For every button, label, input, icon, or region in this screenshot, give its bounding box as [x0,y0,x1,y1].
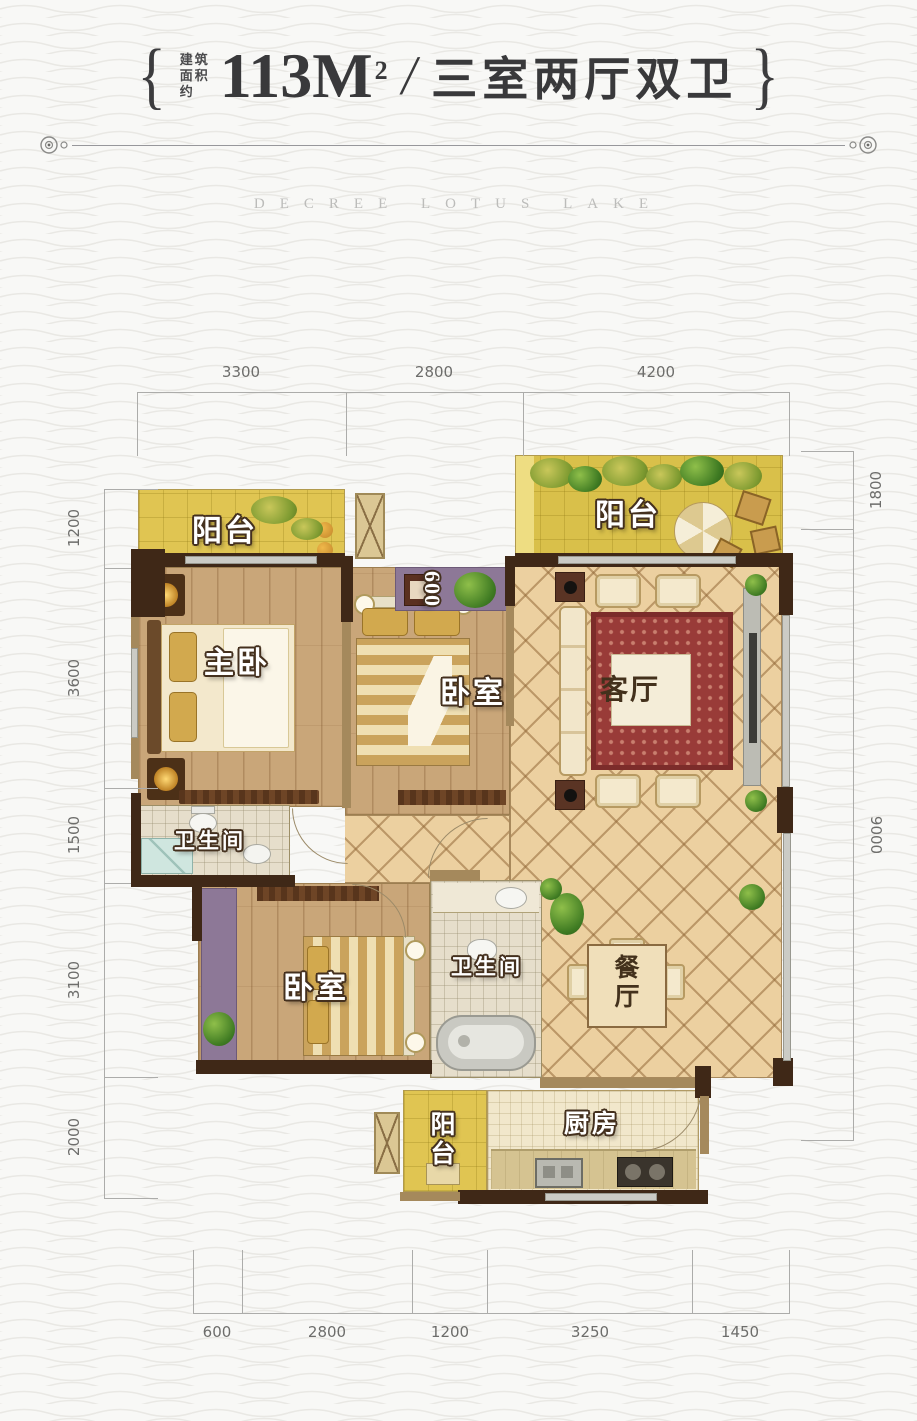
door-leaf [700,1096,709,1154]
dim-tick [487,1250,488,1313]
armchair [655,774,701,808]
plant-icon [646,464,682,490]
armchair [595,574,641,608]
room-master-bedroom [138,567,345,807]
plant-icon [454,572,496,608]
plant-icon [680,456,724,486]
armchair [655,574,701,608]
plant-icon [291,518,323,540]
dim-label: 3600 [65,659,83,697]
dim-tick [104,1077,158,1078]
wicker-chair [734,490,771,526]
scroll-ornament-right-icon [845,134,879,156]
plant-icon [540,878,562,900]
window [783,833,791,1061]
duct-shaft [374,1112,400,1174]
side-table [555,572,585,602]
wall [777,787,793,833]
kitchen-counter [491,1149,696,1189]
page-title: 三室两厅双卫 [431,43,737,109]
wall [400,1192,460,1201]
sofa [559,606,587,776]
ornament-right-icon: } [751,39,779,113]
palm-plant-icon [550,893,584,935]
room-living-dining [510,565,782,1078]
dim-line-top [137,392,790,393]
window [545,1193,657,1201]
dim-label: 1800 [867,471,885,509]
dim-tick [523,392,524,456]
dim-label: 1450 [721,1323,759,1341]
room-label: 卫生间 [174,825,246,855]
room-label: 卧室 [440,668,506,712]
wicker-chair [750,525,782,555]
room-label: 客厅 [600,668,660,708]
plant-icon [739,884,765,910]
dim-label: 2800 [308,1323,346,1341]
ornament-left-icon: { [138,39,166,113]
dim-tick [789,392,790,456]
dim-label: 600 [203,1323,232,1341]
ornamental-divider [38,134,879,156]
area-value: 113M2 [220,44,388,108]
plant-icon [203,1012,235,1046]
plant-icon [745,790,767,812]
dim-label: 1500 [65,816,83,854]
dim-label: 3250 [571,1323,609,1341]
room-label: 阳台 [192,506,258,550]
plant-icon [530,458,574,488]
planter-strip [395,567,511,611]
page-header: { 建筑 面积 约 113M2 / 三室两厅双卫 } [0,28,917,124]
plant-icon [745,574,767,596]
dim-line-bottom [193,1313,790,1314]
window [558,556,736,564]
window [131,648,138,738]
dining-chair [567,964,589,1000]
wall [779,553,793,615]
wall [192,883,202,941]
bathtub-icon [436,1015,536,1071]
armchair [595,774,641,808]
dim-tick [801,529,854,530]
stove-icon [617,1157,673,1187]
wall [430,870,480,881]
wall [505,556,515,606]
room-label: 主卧 [204,638,270,682]
sink-icon [495,887,527,909]
project-name-watermark: DECREE LOTUS LAKE [0,196,917,213]
inner-dim-label: 600 [419,571,445,607]
tv-cabinet [743,588,761,786]
wall [131,549,165,617]
plant-icon [602,456,648,486]
room-label: 卫生间 [451,951,523,981]
dim-label: 1200 [65,509,83,547]
dim-tick [104,489,158,490]
dim-tick [242,1250,243,1313]
area-label-line: 约 [180,84,210,100]
dim-label: 1200 [431,1323,469,1341]
area-superscript: 2 [375,56,388,85]
wall [773,1058,793,1086]
dim-line-right [853,451,854,1140]
window [782,615,790,787]
dim-tick [104,788,158,789]
wall [342,622,351,808]
divider-line [72,145,845,146]
floorplan-page: { "header": { "area_label_lines": ["建筑",… [0,0,917,1421]
dim-label: 2000 [65,1118,83,1156]
wall [506,606,514,726]
dim-tick [692,1250,693,1313]
window [185,556,317,564]
separator: / [397,44,422,108]
dresser [398,790,506,805]
dim-label: 4200 [637,363,675,381]
wall [341,556,353,622]
dim-label: 2800 [415,363,453,381]
duct-shaft [355,493,385,559]
dim-line-left [104,489,105,1198]
wall [196,1060,432,1074]
dim-label: 3100 [65,961,83,999]
dim-tick [801,451,854,452]
wall [131,793,141,881]
wall [695,1066,711,1098]
dim-label: 9000 [867,816,885,854]
area-label-line: 面积 [180,68,210,84]
plant-icon [724,462,762,490]
sink-icon [243,844,271,864]
room-label: 阳台 [422,1111,458,1169]
room-label: 厨房 [564,1104,620,1140]
wall [131,875,295,887]
plant-icon [568,466,602,492]
side-table [555,780,585,810]
dim-label: 3300 [222,363,260,381]
dim-tick [104,1198,158,1199]
dim-tick [346,392,347,456]
area-label: 建筑 面积 约 [180,52,210,101]
dim-tick [137,392,138,456]
room-label: 卧室 [283,963,349,1007]
dim-tick [789,1250,790,1313]
dim-tick [412,1250,413,1313]
dresser [179,790,319,804]
dim-tick [193,1250,194,1313]
dim-tick [801,1140,854,1141]
room-label: 阳台 [595,490,661,534]
room-label: 餐厅 [606,954,642,1012]
wall [540,1078,696,1088]
area-label-line: 建筑 [180,52,210,68]
scroll-ornament-left-icon [38,134,72,156]
kitchen-sink-icon [535,1158,583,1188]
